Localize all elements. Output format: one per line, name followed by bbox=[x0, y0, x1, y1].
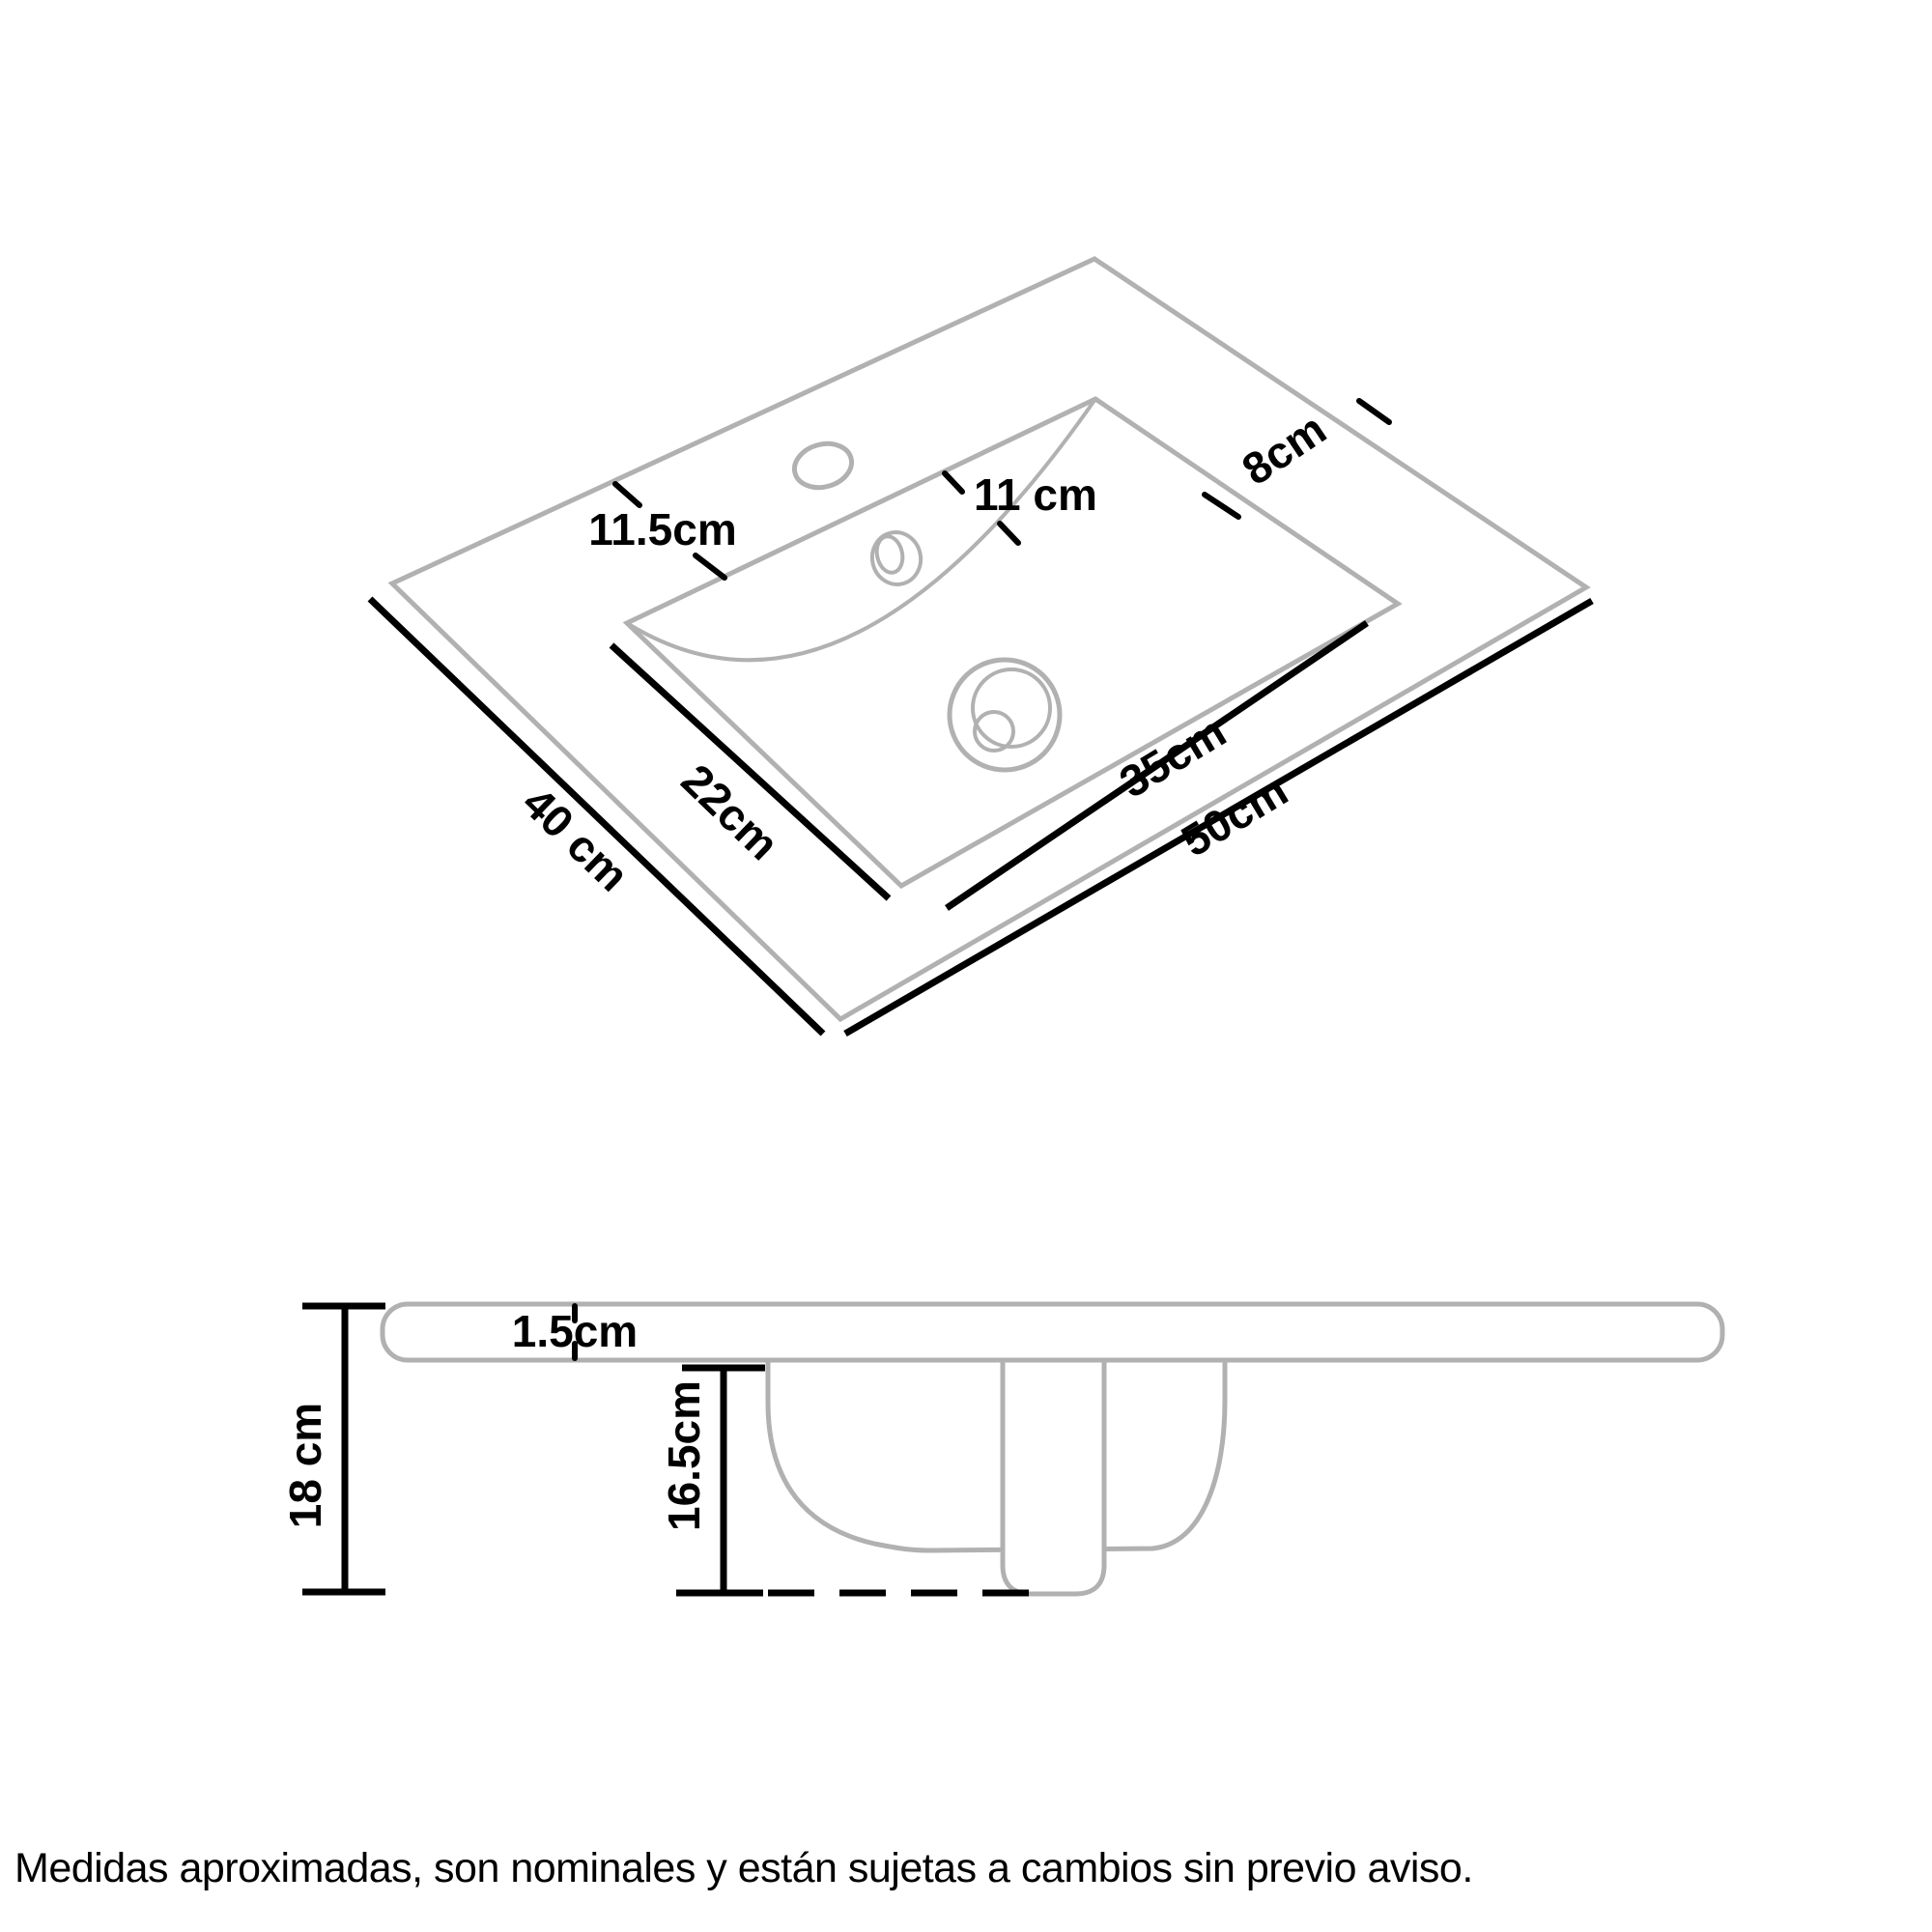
label-left-deck: 11.5cm bbox=[588, 504, 736, 554]
side-view: 18 cm 16.5cm 1.5cm bbox=[280, 1304, 1722, 1594]
side-basin-bowl bbox=[768, 1358, 1225, 1550]
tick-8cm-outer bbox=[1359, 401, 1389, 422]
top-view: 40 cm 22cm 35cm 50cm 11.5cm 11 cm 8cm bbox=[370, 259, 1592, 1034]
label-bowl-depth: 16.5cm bbox=[659, 1380, 709, 1531]
side-drain-pipe bbox=[1003, 1358, 1104, 1594]
label-faucet-offset: 11 cm bbox=[974, 469, 1097, 520]
disclaimer-text: Medidas aproximadas, son nominales y est… bbox=[14, 1845, 1473, 1891]
label-slab-thickness: 1.5cm bbox=[512, 1306, 638, 1356]
sink-technical-drawing: 40 cm 22cm 35cm 50cm 11.5cm 11 cm 8cm 18… bbox=[0, 0, 1932, 1932]
label-total-height: 18 cm bbox=[280, 1403, 330, 1528]
